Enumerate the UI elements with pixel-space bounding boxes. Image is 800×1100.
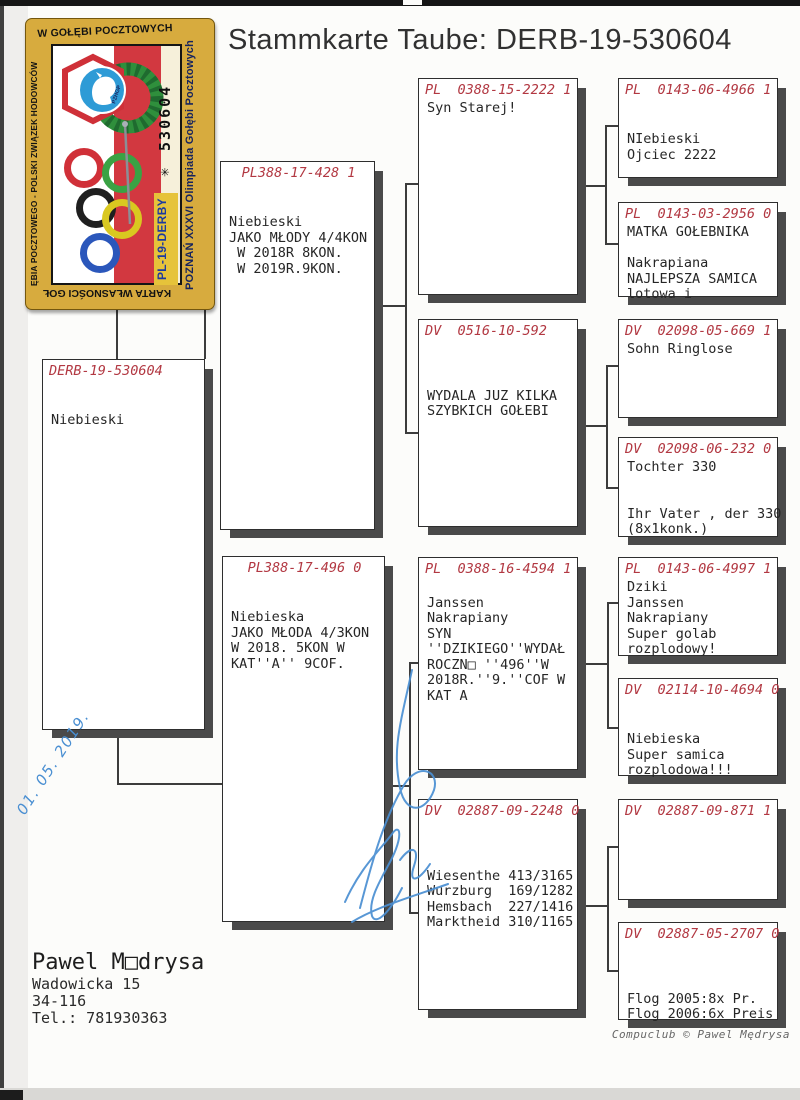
pedigree-box-mmf: DV 02887-09-871 1 bbox=[618, 799, 778, 900]
tree-connector-line bbox=[578, 905, 608, 907]
ring-number: PL 0143-03-2956 0 bbox=[619, 203, 777, 224]
scan-top-edge-notch bbox=[403, 0, 422, 5]
pigeon-notes: Tochter 330 Ihr Vater , der 330 (8x1konk… bbox=[619, 459, 777, 538]
pedigree-box-ff: PL 0388-15-2222 1Syn Starej! bbox=[418, 78, 578, 295]
pigeon-notes: WYDALA JUZ KILKA SZYBKICH GOŁEBI bbox=[419, 341, 577, 420]
tree-connector-line bbox=[607, 602, 609, 728]
tree-connector-line bbox=[116, 305, 118, 359]
ring-number: DV 0516-10-592 bbox=[419, 320, 577, 341]
stamp-derby-code: PL-19-DERBY bbox=[155, 195, 169, 283]
pigeon-notes bbox=[619, 821, 777, 822]
pedigree-card-scan: Stammkarte Taube: DERB-19-530604 DERB-19… bbox=[0, 0, 800, 1100]
pedigree-box-mmm: DV 02887-05-2707 0 Flog 2005:8x Pr. Flog… bbox=[618, 922, 778, 1020]
ring-number: PL 0143-06-4966 1 bbox=[619, 79, 777, 100]
pin-icon bbox=[122, 121, 130, 224]
tree-connector-line bbox=[405, 432, 419, 434]
ring-number: PL 0388-15-2222 1 bbox=[419, 79, 577, 100]
pigeon-notes: Flog 2005:8x Pr. Flog 2006:6x Preis bbox=[619, 944, 777, 1023]
software-credit: Compuclub © Pawel Mędrysa bbox=[612, 1028, 790, 1041]
pigeon-notes: MATKA GOŁEBNIKA Nakrapiana NAJLEPSZA SAM… bbox=[619, 224, 777, 303]
stamp-left-text: ĘBIA POCZTOWEGO - POLSKI ZWIĄZEK HODOWCÓ… bbox=[29, 43, 39, 305]
tree-connector-line bbox=[607, 846, 609, 971]
stamp-right-text: POZNAŃ XXXVI Olimpiada Gołębi Pocztowych bbox=[184, 19, 196, 311]
owner-city: 34-116 bbox=[32, 993, 204, 1010]
ring-number: PL388-17-428 1 bbox=[221, 162, 374, 183]
pigeon-notes: Niebieska Super samica rozplodowa!!! bbox=[619, 700, 777, 779]
tree-connector-line bbox=[605, 125, 607, 244]
stamp-bottom-text: KARTA WŁASNOŚCI GOŁ bbox=[32, 287, 182, 299]
ring-number: DV 02098-05-669 1 bbox=[619, 320, 777, 341]
tree-connector-line bbox=[405, 183, 419, 185]
pedigree-box-ffm: PL 0143-03-2956 0MATKA GOŁEBNIKA Nakrapi… bbox=[618, 202, 778, 297]
pedigree-box-fmm: DV 02098-06-232 0Tochter 330 Ihr Vater ,… bbox=[618, 437, 778, 537]
tree-connector-line bbox=[405, 183, 407, 433]
scan-top-edge bbox=[0, 0, 800, 6]
ring-number: DERB-19-530604 bbox=[43, 360, 204, 381]
scan-bottom-edge bbox=[0, 1088, 800, 1100]
pigeon-notes: Niebieski JAKO MŁODY 4/4KON W 2018R 8KON… bbox=[221, 183, 374, 277]
tree-connector-line bbox=[578, 663, 608, 665]
tree-connector-line bbox=[578, 185, 606, 187]
scan-bottom-corner-mark bbox=[0, 1090, 23, 1100]
pigeon-notes: Dziki Janssen Nakrapiany Super golab roz… bbox=[619, 579, 777, 658]
owner-street: Wadowicka 15 bbox=[32, 976, 204, 993]
pedigree-box-mff: PL 0143-06-4997 1Dziki Janssen Nakrapian… bbox=[618, 557, 778, 656]
pedigree-box-father: PL388-17-428 1 Niebieski JAKO MŁODY 4/4K… bbox=[220, 161, 375, 530]
pedigree-box-fmf: DV 02098-05-669 1Sohn Ringlose bbox=[618, 319, 778, 418]
ring-number: DV 02114-10-4694 0 bbox=[619, 679, 777, 700]
ring-number: PL388-17-496 0 bbox=[223, 557, 384, 578]
owner-phone: Tel.: 781930363 bbox=[32, 1010, 204, 1027]
tree-connector-line bbox=[605, 243, 619, 245]
pigeon-notes: Syn Starej! bbox=[419, 100, 577, 117]
tree-connector-line bbox=[578, 425, 607, 427]
stamp-serial-number: ✳ 530604 bbox=[156, 53, 174, 213]
ring-number: PL 0388-16-4594 1 bbox=[419, 558, 577, 579]
tree-connector-line bbox=[606, 365, 608, 488]
scan-left-edge bbox=[0, 0, 4, 1100]
owner-block: Pawel M□drysa Wadowicka 15 34-116 Tel.: … bbox=[32, 950, 204, 1027]
ring-number: PL 0143-06-4997 1 bbox=[619, 558, 777, 579]
pedigree-box-fff: PL 0143-06-4966 1 NIebieski Ojciec 2222 bbox=[618, 78, 778, 178]
derby-stamp: PZHGP W GOŁĘBI POCZTOWYCH ĘBIA POCZTOWEG… bbox=[25, 18, 215, 310]
pigeon-notes: Niebieski bbox=[43, 381, 204, 429]
ring-number: DV 02098-06-232 0 bbox=[619, 438, 777, 459]
tree-connector-line bbox=[605, 125, 619, 127]
tree-connector-line bbox=[204, 305, 206, 359]
pigeon-notes: NIebieski Ojciec 2222 bbox=[619, 100, 777, 163]
ring-number: DV 02887-05-2707 0 bbox=[619, 923, 777, 944]
pedigree-box-fm: DV 0516-10-592 WYDALA JUZ KILKA SZYBKICH… bbox=[418, 319, 578, 527]
page-title: Stammkarte Taube: DERB-19-530604 bbox=[228, 24, 788, 57]
ring-number: DV 02887-09-871 1 bbox=[619, 800, 777, 821]
pedigree-box-mfm: DV 02114-10-4694 0 Niebieska Super samic… bbox=[618, 678, 778, 776]
tree-connector-line bbox=[375, 305, 406, 307]
club-badge-icon: PZHGP bbox=[65, 57, 125, 121]
pigeon-notes: Sohn Ringlose bbox=[619, 341, 777, 358]
handwritten-signature bbox=[20, 640, 480, 960]
